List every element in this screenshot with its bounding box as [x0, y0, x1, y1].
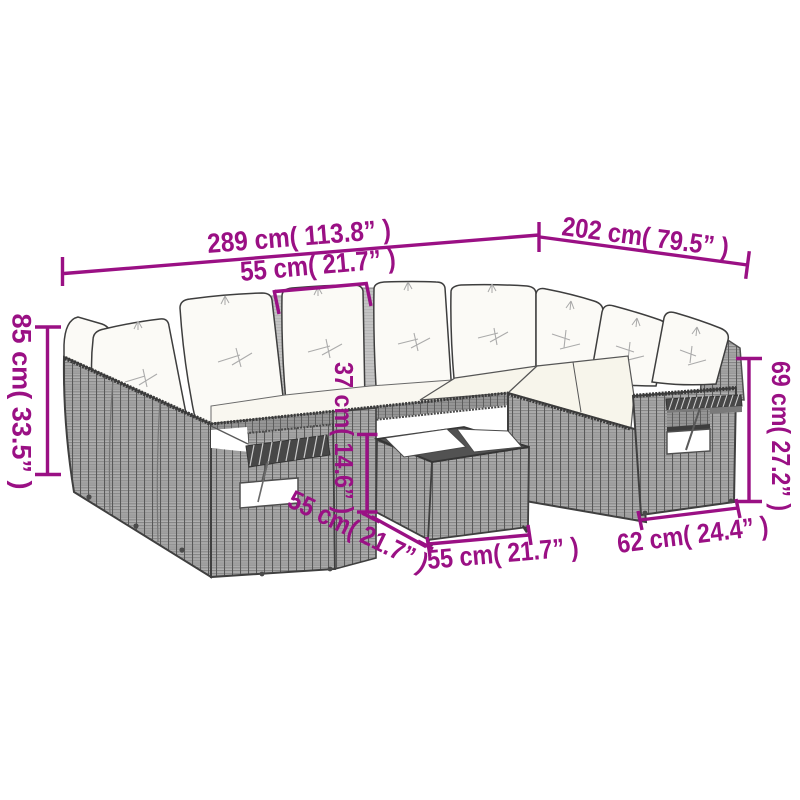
svg-text:37 cm( 14.6” ): 37 cm( 14.6” ) — [329, 362, 359, 514]
svg-text:69 cm( 27.2” ): 69 cm( 27.2” ) — [766, 361, 796, 511]
svg-text:85 cm( 33.5” ): 85 cm( 33.5” ) — [7, 314, 37, 490]
